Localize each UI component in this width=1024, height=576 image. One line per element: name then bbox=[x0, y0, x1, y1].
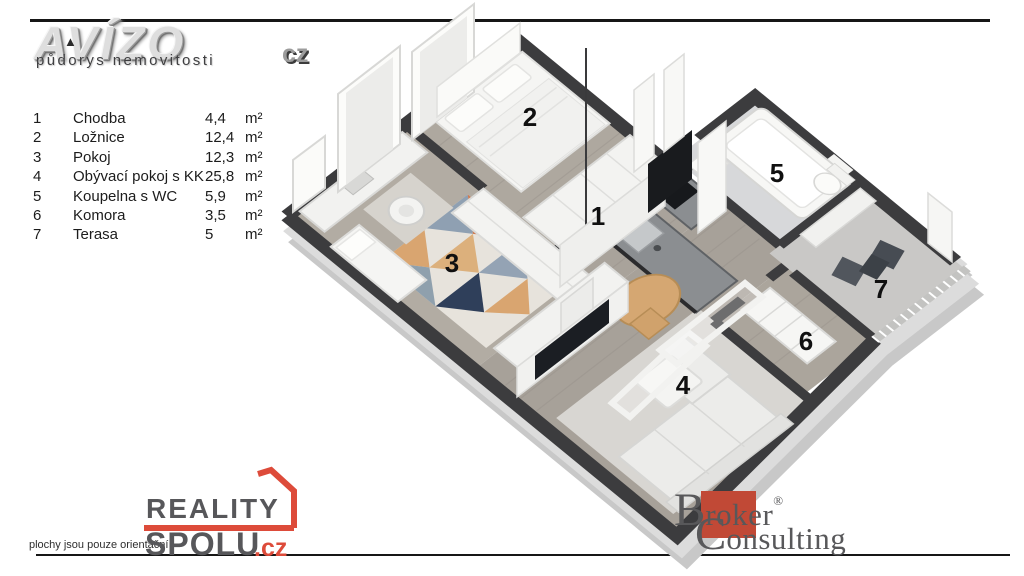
consulting-word: Consulting bbox=[695, 507, 846, 561]
reality-word: REALITY bbox=[146, 493, 280, 525]
reality-tld: .cz bbox=[254, 534, 287, 563]
entry-door-panel bbox=[664, 54, 684, 152]
room-label-7: 7 bbox=[874, 274, 888, 304]
room-label-4: 4 bbox=[676, 370, 691, 400]
consulting-initial: C bbox=[695, 508, 726, 560]
floor-plan-flyer: AVÍZO ▲ půdorys nemovitosti cz 1 Chodba … bbox=[0, 0, 1024, 576]
room-label-3: 3 bbox=[445, 248, 459, 278]
room-label-5: 5 bbox=[770, 158, 784, 188]
consulting-rest: onsulting bbox=[726, 521, 846, 556]
spolu-word: SPOLU bbox=[145, 526, 260, 563]
room-label-1: 1 bbox=[591, 201, 605, 231]
entry-door-panel bbox=[634, 74, 654, 172]
registered-mark-icon: ® bbox=[773, 493, 783, 508]
broker-consulting-logo: Broker® Consulting bbox=[672, 481, 922, 565]
room-label-6: 6 bbox=[799, 326, 813, 356]
room-label-2: 2 bbox=[523, 102, 537, 132]
reality-spolu-logo: REALITY SPOLU .cz bbox=[138, 460, 308, 560]
